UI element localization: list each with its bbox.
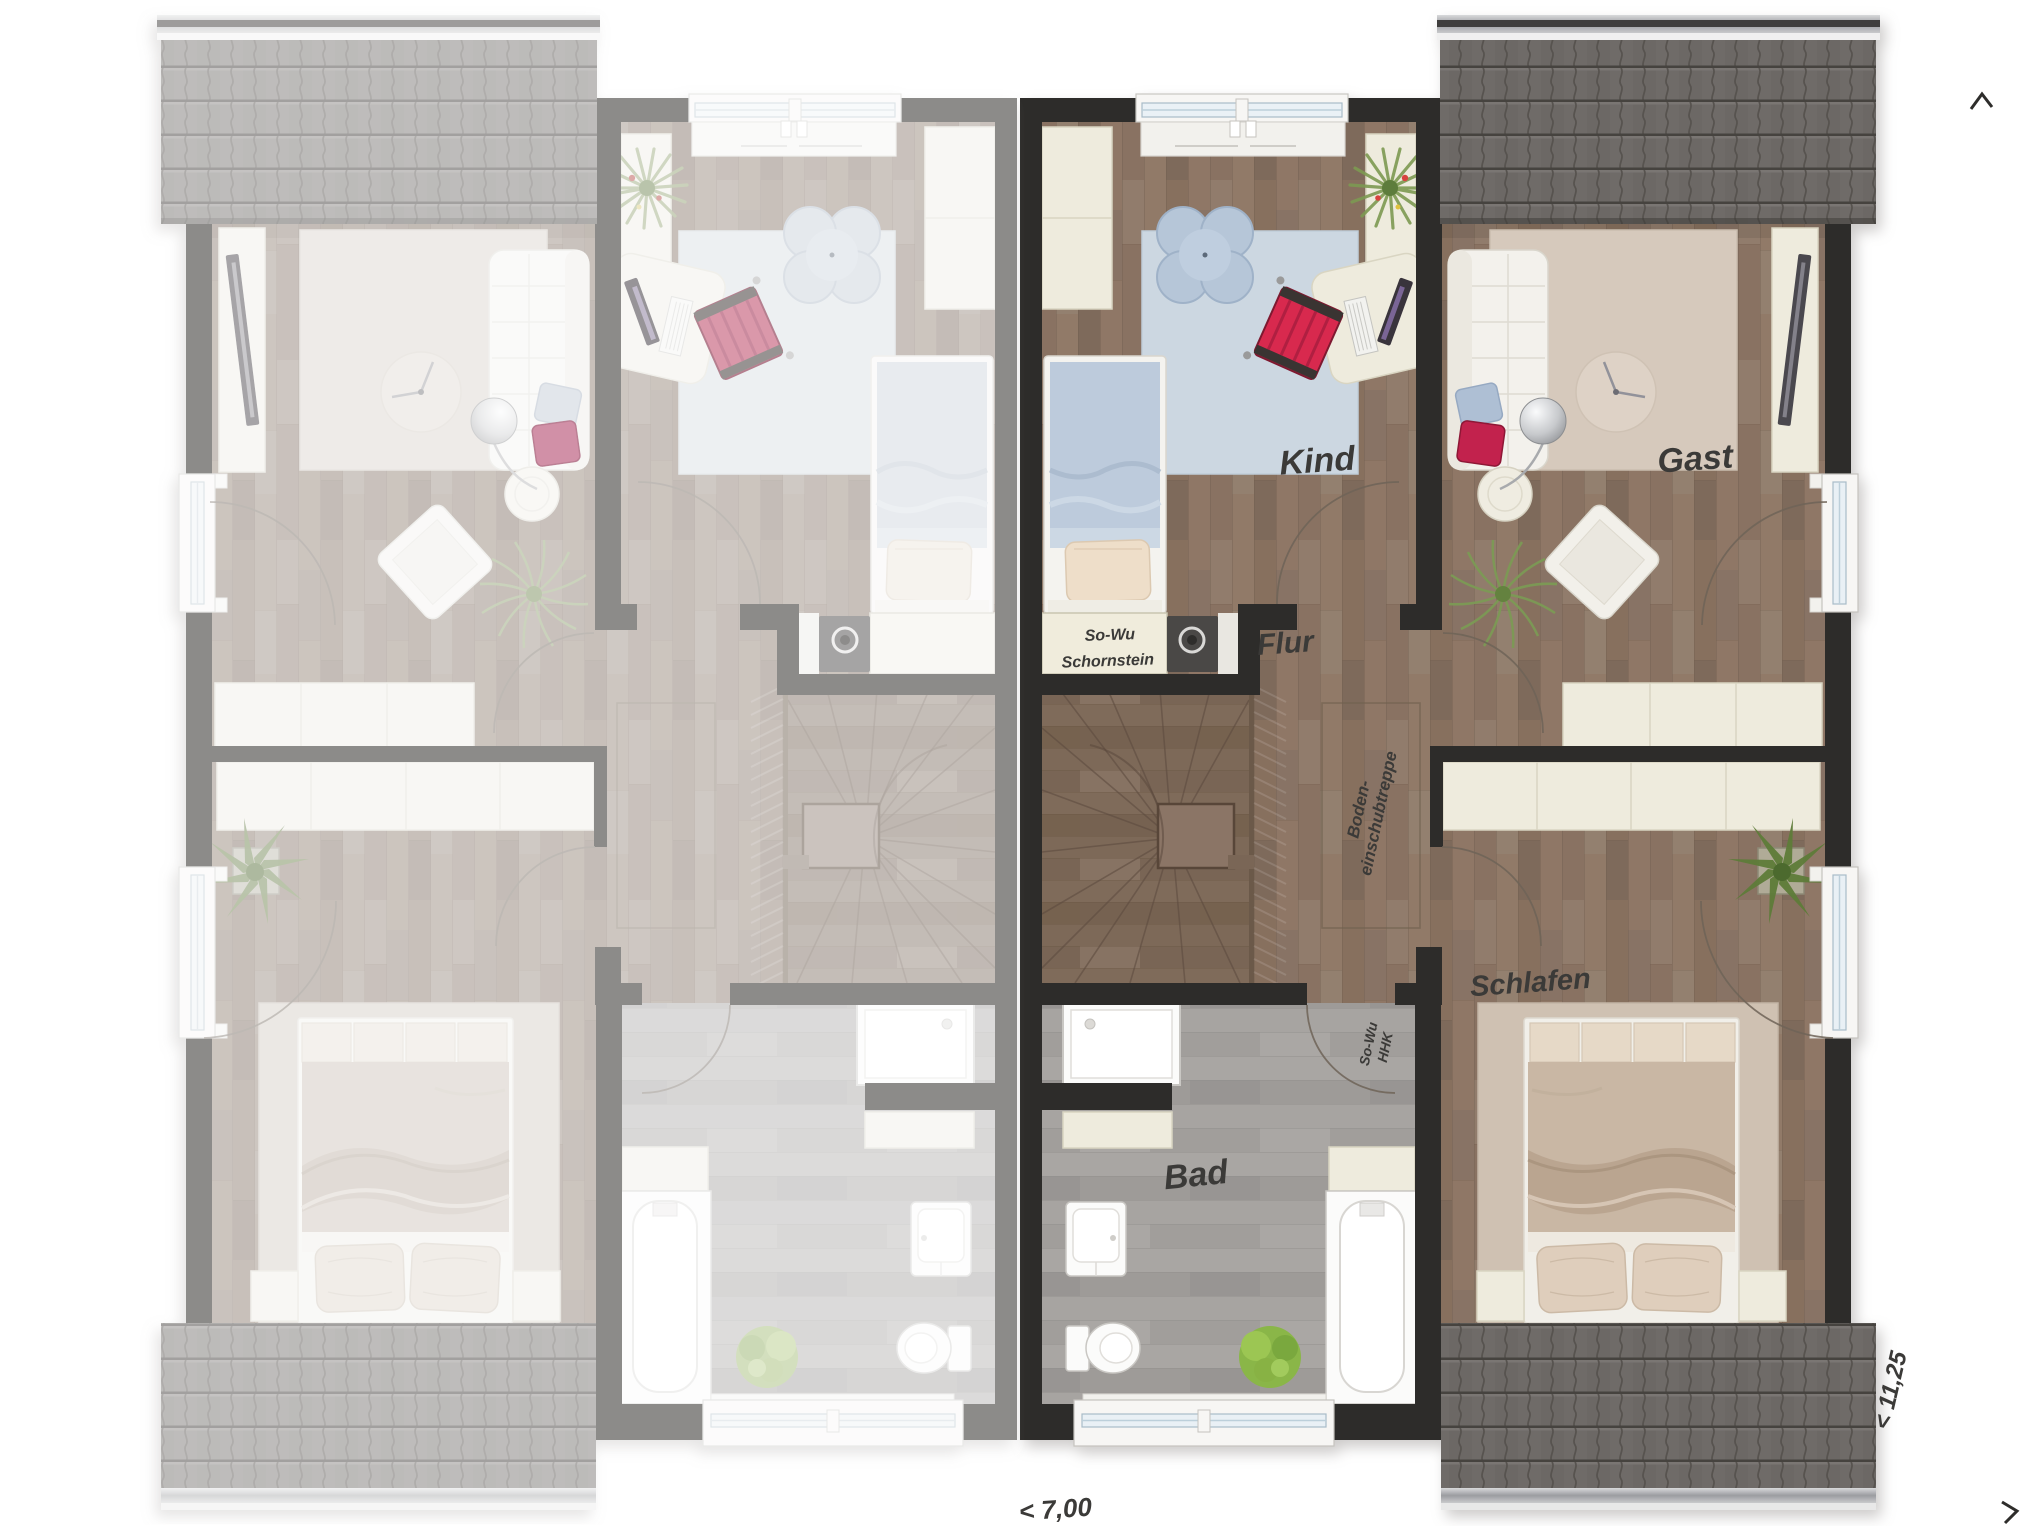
- svg-text:Gast: Gast: [1656, 437, 1736, 480]
- svg-text:Bad: Bad: [1162, 1153, 1231, 1198]
- svg-text:Schornstein: Schornstein: [1061, 651, 1154, 671]
- svg-text:< 7,00: < 7,00: [1018, 1491, 1093, 1526]
- svg-text:Flur: Flur: [1256, 625, 1317, 662]
- svg-text:So-Wu: So-Wu: [1084, 626, 1135, 645]
- svg-text:Kind: Kind: [1278, 439, 1357, 482]
